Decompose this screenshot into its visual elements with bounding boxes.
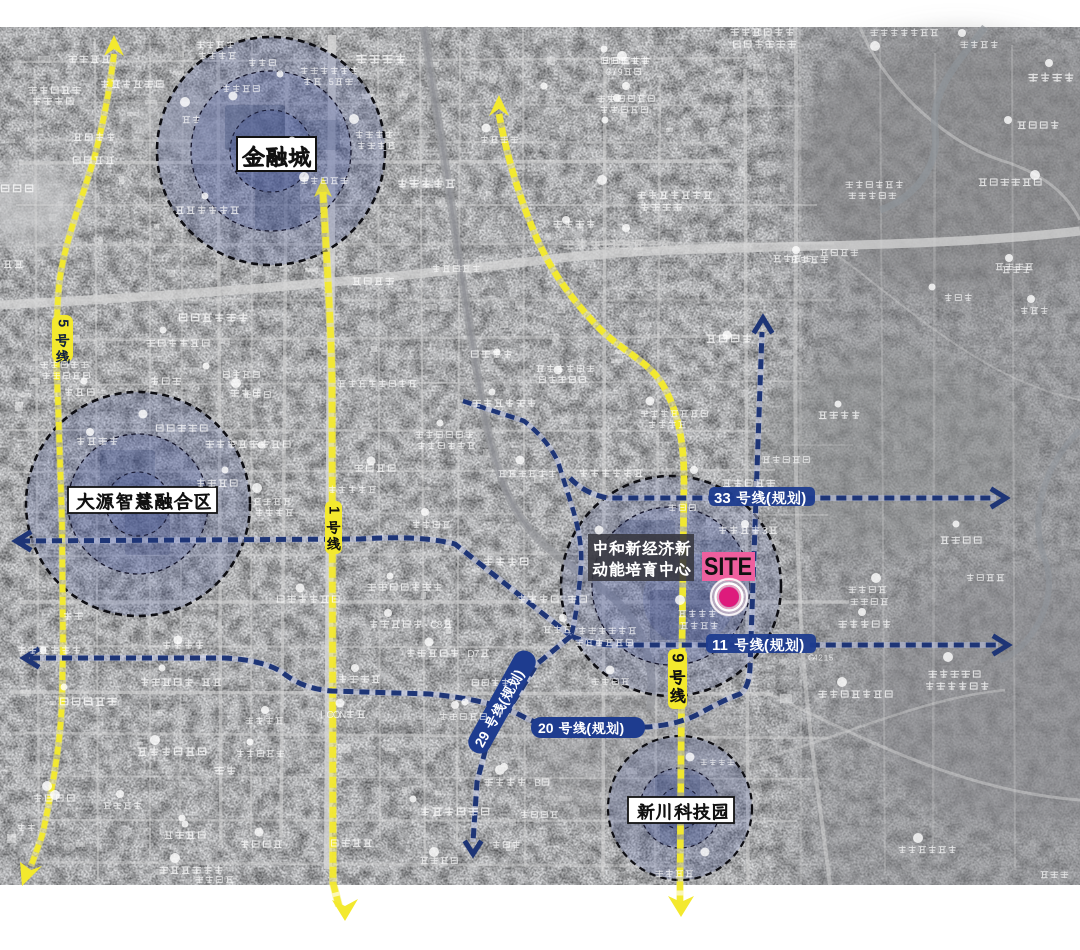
svg-text:): )	[801, 490, 806, 507]
svg-text:20: 20	[538, 720, 554, 736]
svg-text:7: 7	[474, 649, 480, 660]
svg-text:B: B	[534, 778, 541, 789]
svg-text:5: 5	[829, 653, 834, 662]
svg-text:): )	[620, 720, 625, 736]
svg-text:5: 5	[55, 319, 71, 327]
svg-text:-: -	[461, 649, 464, 660]
svg-text:8: 8	[437, 620, 443, 631]
svg-text:3: 3	[606, 67, 611, 77]
svg-text:9: 9	[669, 653, 687, 662]
svg-text:-: -	[424, 620, 427, 631]
svg-text:3: 3	[762, 526, 768, 537]
svg-text:-: -	[561, 595, 564, 606]
svg-text:.: .	[37, 823, 40, 833]
svg-text:(: (	[586, 720, 591, 736]
svg-text:(: (	[764, 637, 769, 654]
svg-text:): )	[799, 637, 804, 654]
svg-text:(: (	[766, 490, 771, 507]
svg-text:5: 5	[329, 77, 334, 87]
svg-text:2: 2	[818, 653, 823, 662]
svg-text:I: I	[320, 710, 323, 721]
svg-text:9: 9	[618, 67, 623, 77]
svg-text:-: -	[528, 778, 531, 789]
svg-text:1: 1	[326, 506, 342, 514]
svg-text:N: N	[339, 710, 346, 721]
svg-text:-: -	[195, 678, 198, 689]
svg-text:33: 33	[714, 490, 731, 507]
svg-text:11: 11	[712, 637, 728, 654]
svg-text:SITE: SITE	[704, 553, 752, 581]
svg-text:7: 7	[612, 67, 617, 77]
